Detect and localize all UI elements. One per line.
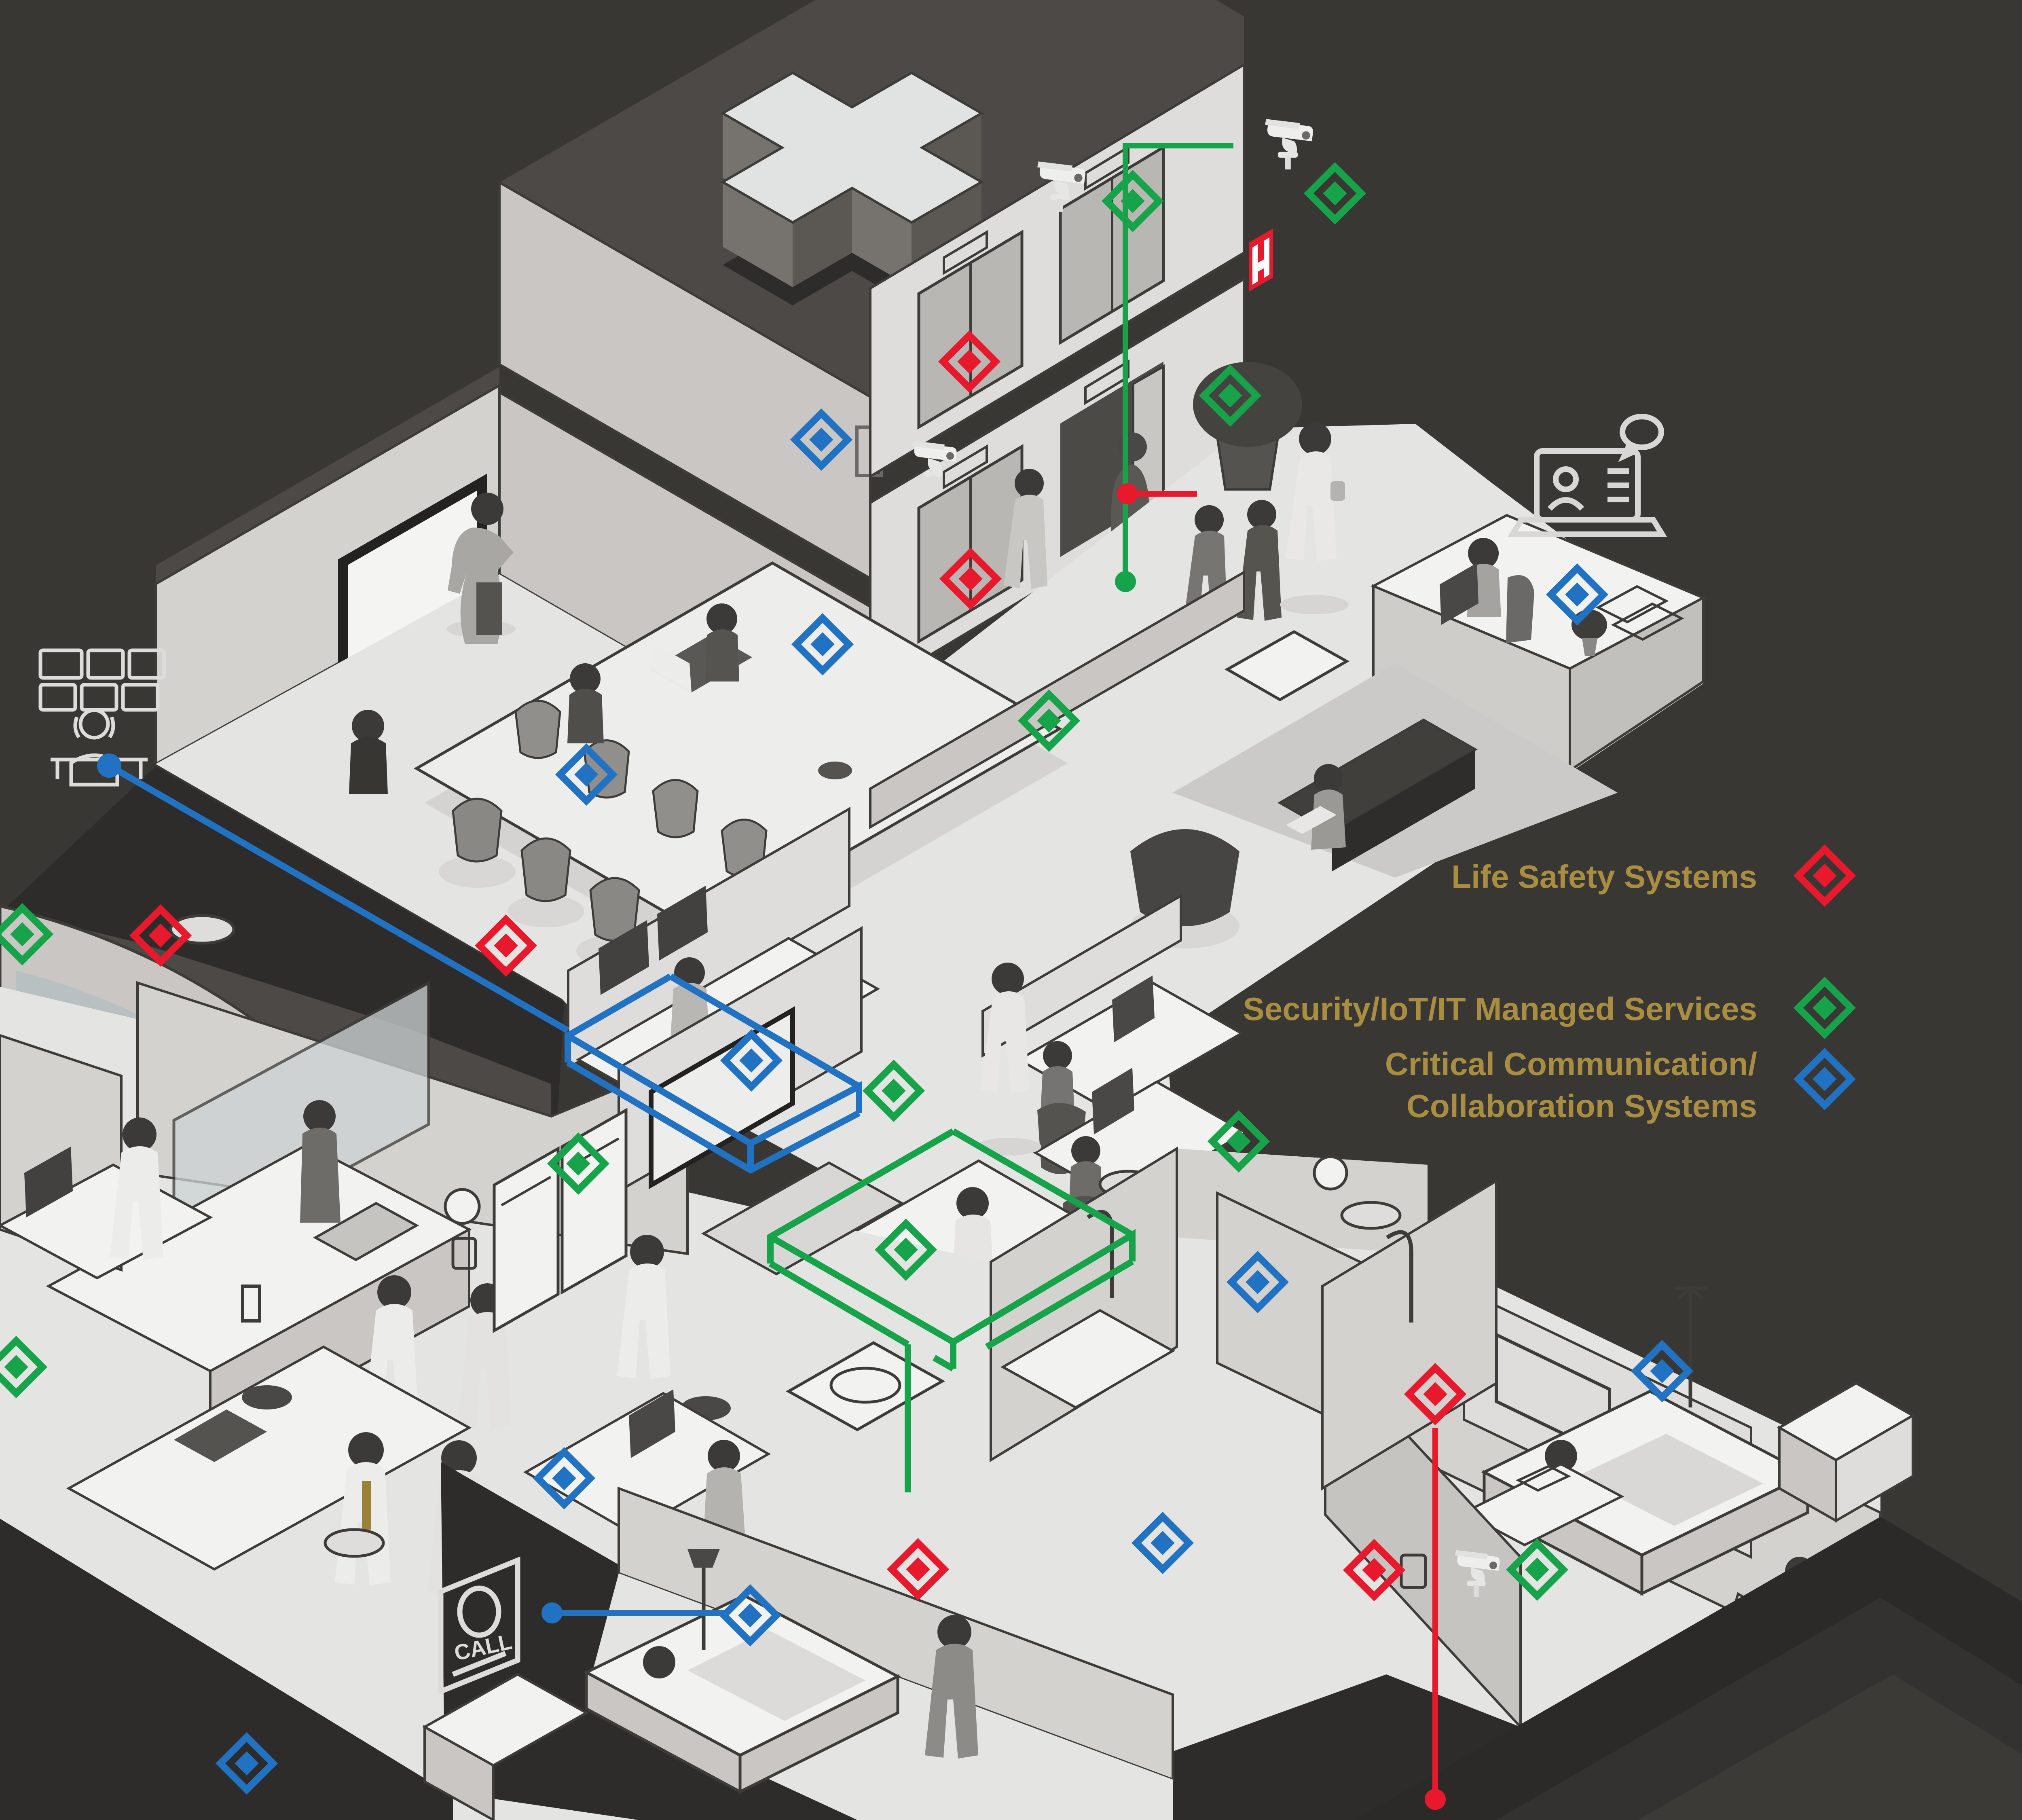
svg-text:Collaboration Systems: Collaboration Systems — [1407, 1088, 1757, 1124]
svg-text:Security/IoT/IT Managed Servic: Security/IoT/IT Managed Services — [1243, 991, 1757, 1027]
svg-text:Critical Communication/: Critical Communication/ — [1385, 1046, 1757, 1082]
svg-text:Life Safety Systems: Life Safety Systems — [1451, 859, 1757, 895]
